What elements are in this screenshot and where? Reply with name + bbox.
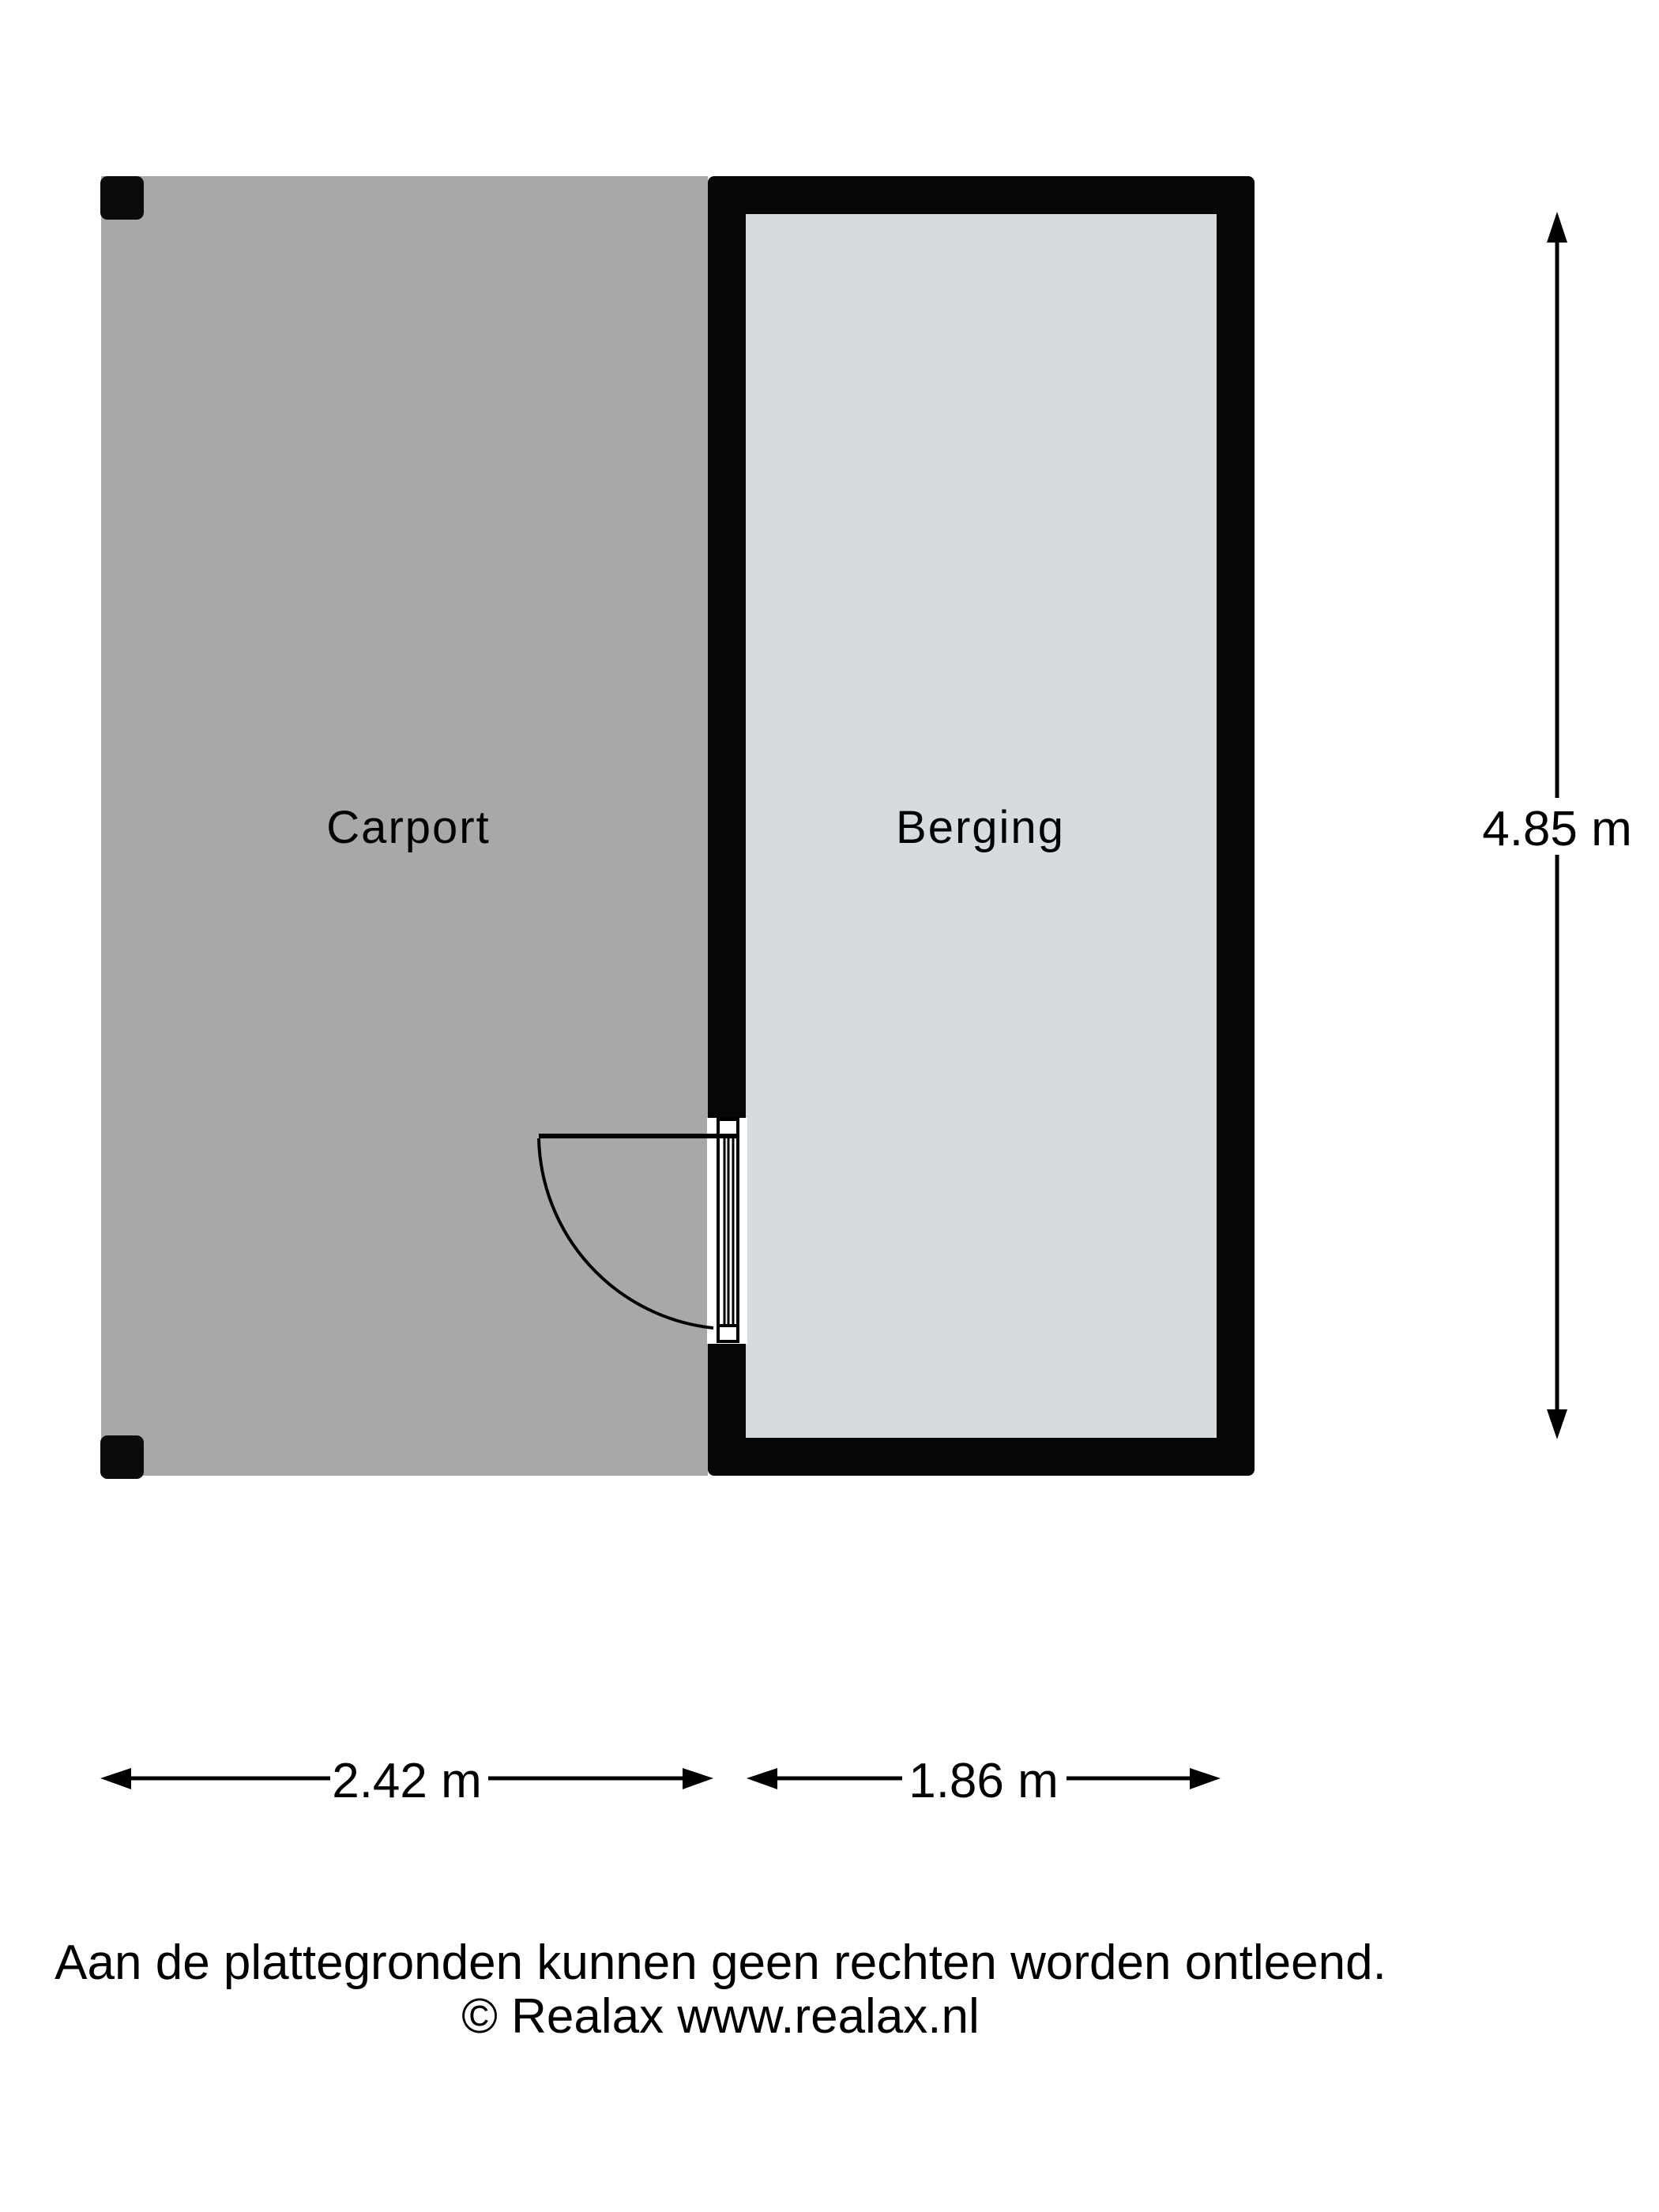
door-frame-bottom [718, 1326, 738, 1341]
room-label-berging: Berging [896, 802, 1065, 853]
door-frame-top [718, 1119, 738, 1136]
room-label-carport: Carport [326, 802, 490, 853]
carport-post-top-left [100, 176, 144, 220]
floorplan-page: 4.85 m 2.42 m 1.86 m Carport Berging Aan… [0, 0, 1659, 2212]
copyright-text: © Realax www.realax.nl [461, 1989, 980, 2044]
disclaimer-text: Aan de plattegronden kunnen geen rechten… [55, 1935, 1386, 1990]
carport-width-label: 2.42 m [332, 1754, 482, 1808]
berging-width-label: 1.86 m [908, 1754, 1059, 1808]
floorplan-drawing: 4.85 m 2.42 m 1.86 m Carport Berging Aan… [0, 0, 1659, 2212]
carport-post-bottom-left [100, 1435, 144, 1479]
height-dimension-label: 4.85 m [1482, 802, 1632, 856]
